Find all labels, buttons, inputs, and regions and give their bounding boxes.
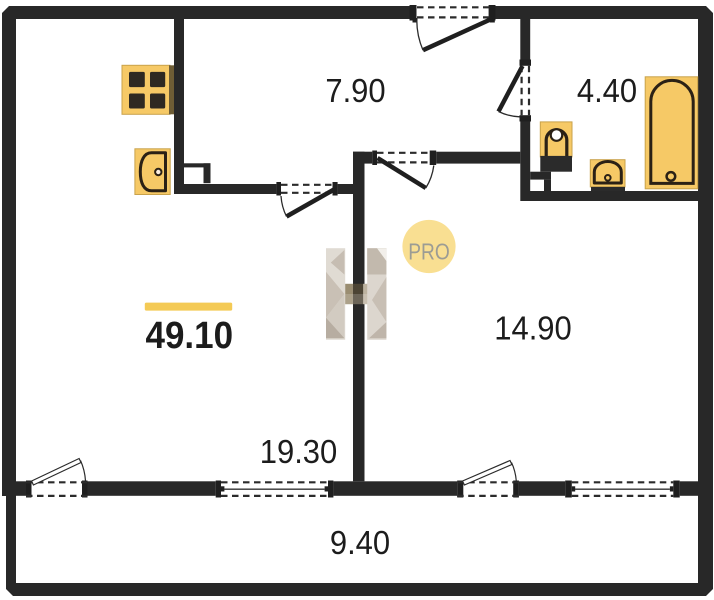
- svg-text:9.40: 9.40: [330, 524, 390, 561]
- svg-text:4.40: 4.40: [577, 72, 637, 109]
- svg-text:19.30: 19.30: [260, 433, 338, 470]
- svg-text:14.90: 14.90: [494, 309, 572, 346]
- svg-text:7.90: 7.90: [325, 72, 385, 109]
- svg-text:PRO: PRO: [408, 239, 450, 265]
- svg-text:49.10: 49.10: [146, 314, 234, 357]
